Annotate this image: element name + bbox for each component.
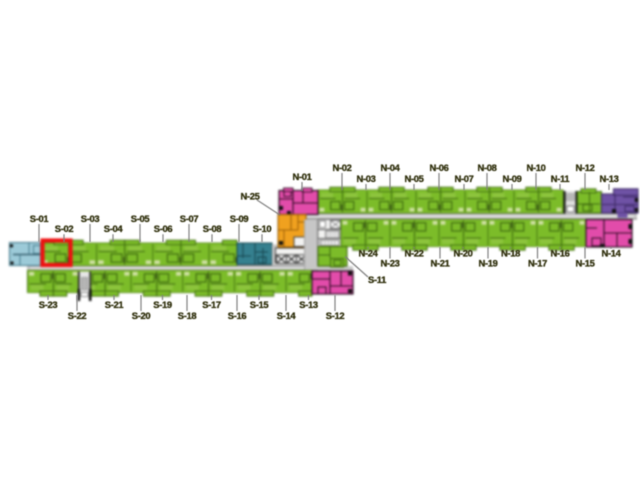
svg-text:S-22: S-22 bbox=[68, 310, 87, 321]
svg-text:N-03: N-03 bbox=[357, 173, 376, 184]
svg-text:N-18: N-18 bbox=[501, 248, 520, 259]
svg-text:S-19: S-19 bbox=[153, 299, 172, 310]
svg-text:N-11: N-11 bbox=[551, 173, 570, 184]
svg-text:N-20: N-20 bbox=[454, 248, 473, 259]
svg-text:S-03: S-03 bbox=[81, 213, 100, 224]
svg-text:N-08: N-08 bbox=[478, 162, 497, 173]
svg-text:N-17: N-17 bbox=[528, 258, 547, 269]
svg-text:S-15: S-15 bbox=[250, 299, 269, 310]
svg-text:N-06: N-06 bbox=[430, 162, 449, 173]
svg-text:S-20: S-20 bbox=[132, 310, 151, 321]
svg-text:N-25: N-25 bbox=[241, 191, 260, 202]
svg-text:S-23: S-23 bbox=[39, 299, 58, 310]
svg-text:N-07: N-07 bbox=[455, 173, 474, 184]
svg-text:S-01: S-01 bbox=[30, 213, 49, 224]
svg-text:N-16: N-16 bbox=[551, 248, 570, 259]
svg-text:N-14: N-14 bbox=[602, 248, 622, 259]
svg-text:S-17: S-17 bbox=[202, 299, 221, 310]
svg-text:S-14: S-14 bbox=[277, 310, 297, 321]
svg-text:S-10: S-10 bbox=[253, 223, 272, 234]
svg-text:N-04: N-04 bbox=[381, 162, 401, 173]
svg-text:S-02: S-02 bbox=[55, 223, 74, 234]
svg-text:S-05: S-05 bbox=[131, 213, 150, 224]
svg-text:N-09: N-09 bbox=[503, 173, 522, 184]
svg-text:N-12: N-12 bbox=[576, 162, 595, 173]
svg-text:S-12: S-12 bbox=[326, 310, 345, 321]
svg-text:S-09: S-09 bbox=[230, 213, 249, 224]
svg-text:S-08: S-08 bbox=[203, 223, 222, 234]
svg-text:S-07: S-07 bbox=[180, 213, 199, 224]
svg-text:N-01: N-01 bbox=[293, 171, 312, 182]
svg-text:S-06: S-06 bbox=[154, 223, 173, 234]
svg-text:N-21: N-21 bbox=[431, 258, 450, 269]
svg-text:S-21: S-21 bbox=[105, 299, 124, 310]
svg-text:N-23: N-23 bbox=[381, 258, 400, 269]
svg-text:S-13: S-13 bbox=[299, 299, 318, 310]
svg-text:N-10: N-10 bbox=[527, 162, 546, 173]
svg-text:N-15: N-15 bbox=[576, 258, 595, 269]
svg-text:N-24: N-24 bbox=[359, 248, 379, 259]
svg-text:N-22: N-22 bbox=[405, 248, 424, 259]
svg-text:N-13: N-13 bbox=[600, 173, 619, 184]
svg-text:S-18: S-18 bbox=[178, 310, 197, 321]
svg-text:N-19: N-19 bbox=[479, 258, 498, 269]
svg-text:S-04: S-04 bbox=[104, 223, 124, 234]
svg-text:N-05: N-05 bbox=[405, 173, 424, 184]
svg-text:N-02: N-02 bbox=[333, 162, 352, 173]
svg-text:S-11: S-11 bbox=[368, 274, 386, 285]
svg-text:S-16: S-16 bbox=[228, 310, 247, 321]
